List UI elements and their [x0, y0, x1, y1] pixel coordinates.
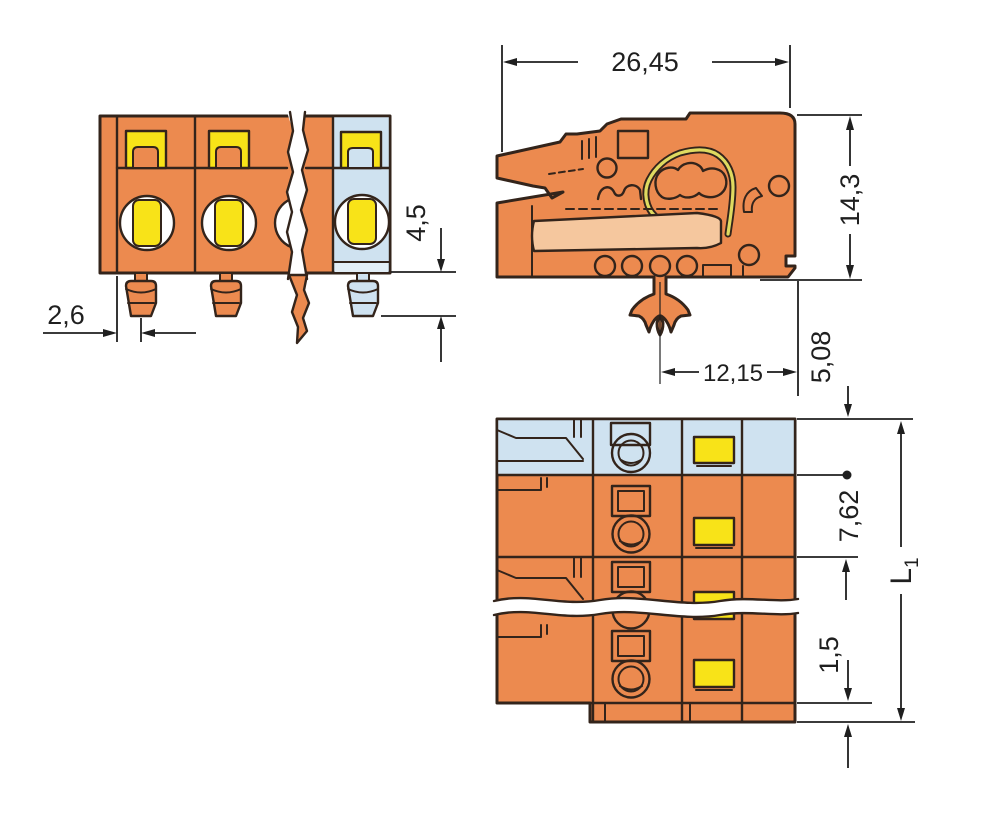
- front-entry-1: [120, 196, 174, 250]
- dim-total-length-subscript: 1: [902, 557, 923, 568]
- arrowhead: [846, 116, 854, 130]
- dim-edge-to-row-label: 5,08: [806, 331, 836, 384]
- bottom-row-blue: [497, 419, 795, 475]
- bottom-break: [494, 598, 798, 617]
- front-clamp-window-3: [341, 132, 381, 168]
- pin-broken: [289, 275, 309, 343]
- front-entry-2: [202, 196, 256, 250]
- arrowhead: [141, 329, 155, 337]
- pin-barrel: [348, 281, 378, 316]
- front-entry-3: [335, 195, 389, 249]
- dim-bottom-step: 1,5: [797, 636, 915, 768]
- front-view: 2,6 4,5: [43, 112, 456, 362]
- arrowhead: [437, 316, 445, 329]
- arrowhead: [775, 58, 789, 66]
- dim-pin-length-label: 4,5: [401, 204, 431, 242]
- dim-total-length-main: L: [885, 568, 918, 585]
- pin-barrel: [126, 281, 156, 316]
- front-clamp-window-1: [126, 131, 166, 168]
- clamp-cavity: [655, 163, 726, 199]
- wire-entry-funnel: [532, 213, 721, 251]
- arrowhead: [846, 265, 854, 279]
- entry-contact: [133, 200, 161, 246]
- dim-total-width-label: 26,45: [611, 47, 679, 77]
- coding-window: [694, 437, 734, 463]
- dim-pin-offset: 2,6: [43, 276, 196, 342]
- dim-pin-length: 4,5: [381, 204, 456, 362]
- dim-pin-offset-label: 2,6: [47, 300, 85, 330]
- pin-4-blue: [348, 273, 378, 316]
- entry-contact: [215, 200, 243, 246]
- dim-pole-pitch: 7,62: [797, 471, 864, 601]
- dim-edge-to-row: 5,08: [806, 331, 852, 417]
- arrowhead: [844, 724, 852, 737]
- technical-drawing-page: 2,6 4,5: [0, 0, 1000, 815]
- pin-barrel: [211, 281, 241, 316]
- dim-foot-to-edge-label: 12,15: [703, 360, 763, 387]
- arrowhead: [437, 259, 445, 272]
- dim-housing-height-label: 14,3: [835, 174, 865, 227]
- clamp-tab: [348, 148, 373, 168]
- arrowhead: [783, 368, 797, 376]
- arrowhead: [897, 421, 905, 434]
- dim-total-length: L1: [797, 419, 923, 721]
- front-end-pole-bevel: [335, 263, 388, 272]
- pin-2: [211, 273, 241, 316]
- origin-dot: [843, 471, 852, 480]
- front-housing: [100, 112, 390, 279]
- dim-pole-pitch-label: 7,62: [834, 490, 864, 543]
- arrowhead: [661, 368, 675, 376]
- connector-technical-drawing: 2,6 4,5: [0, 0, 1000, 815]
- arrowhead: [897, 708, 905, 721]
- clamp-tab: [216, 147, 241, 168]
- arrowhead: [503, 58, 517, 66]
- clamp-tab: [133, 147, 158, 168]
- arrowhead: [844, 688, 852, 701]
- arrowhead: [103, 329, 117, 337]
- front-clamp-window-2: [209, 131, 249, 168]
- arrowhead: [844, 404, 852, 417]
- dim-bottom-step-label: 1,5: [814, 636, 844, 674]
- entry-contact: [348, 199, 376, 244]
- coding-window: [694, 518, 734, 545]
- pin-1: [126, 273, 156, 316]
- dim-foot-to-edge: 12,15: [660, 281, 798, 396]
- arrowhead: [842, 559, 850, 572]
- side-view: 26,45 14,3 5,08 12,15: [497, 45, 865, 417]
- dim-total-length-label: L1: [885, 557, 923, 584]
- bottom-view: 7,62 1,5 L1: [494, 419, 923, 768]
- coding-window: [694, 660, 734, 687]
